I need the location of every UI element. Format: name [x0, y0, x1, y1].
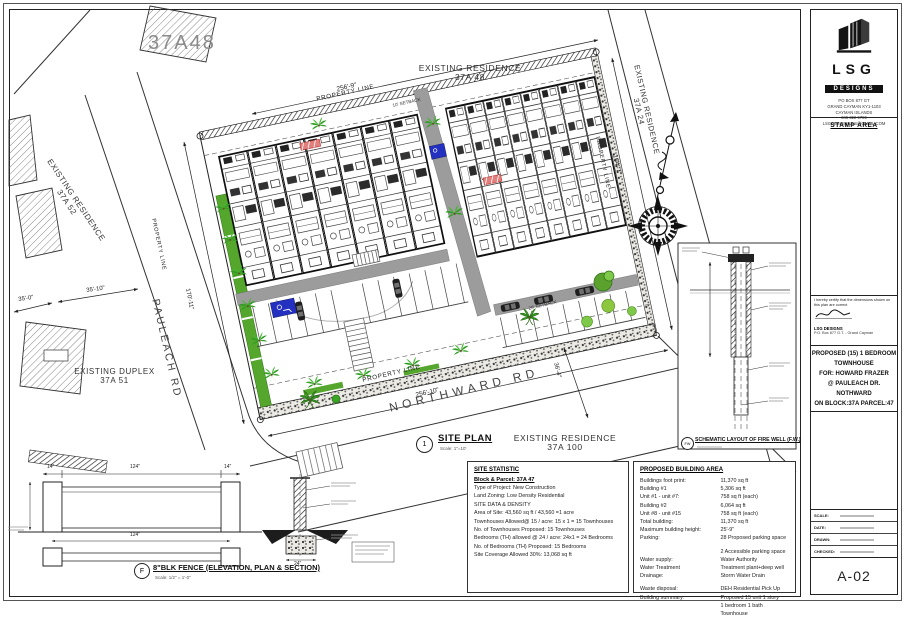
lsg-logo-icon [833, 14, 875, 56]
title-block-fields: SCALE: DATE: DRAWN: CHECKED: [811, 510, 897, 558]
site-statistic-line: Land Zoning: Low Density Residential [474, 492, 622, 500]
building-area-row: Building summary: Proposed 15 unit 1 sto… [640, 594, 789, 602]
project-title-line: FOR: HOWARD FRAZER [811, 369, 897, 379]
building-area-row: Drainage: Storm Water Drain [640, 572, 789, 580]
certification-section: I hereby certify that the dimensions sho… [811, 296, 897, 346]
sheet-number-section: A-02 [811, 558, 897, 594]
firm-logo-section: LSG DESIGNS PO BOX 877 GTGRAND CAYMAN KY… [811, 10, 897, 118]
fence-dim-post-left: 14" [47, 465, 54, 471]
drawing-sheet: 37A48 EXISTING RESIDENCE37A 48 EXISTING … [0, 0, 905, 604]
project-title-line: TOWNHOUSE [811, 359, 897, 369]
site-plan-callout-number: 1 [416, 436, 433, 453]
project-title-section: PROPOSED (15) 1 BEDROOMTOWNHOUSEFOR: HOW… [811, 346, 897, 412]
certification-address: P.O. Box 877 G.T. - Grand Cayman [814, 331, 894, 335]
site-statistic-subtitle: Block & Parcel: 37A 47 [474, 477, 622, 483]
site-statistic-line: No. of Bedrooms (TH) Proposed: 15 Bedroo… [474, 543, 622, 551]
site-statistic-line: Bedrooms (TH) allowed @ 24 / acre: 24x1 … [474, 534, 622, 542]
title-block-field-row: SCALE: [811, 510, 897, 522]
site-statistic-line: Area of Site: 43,560 sq ft / 43,560 =1 a… [474, 509, 622, 517]
fire-well-title: SCHEMATIC LAYOUT OF FIRE WELL (F.W.) [695, 438, 801, 444]
building-area-row: Maximum building height: 25'-9" [640, 526, 789, 534]
building-area-row: Waste disposal: DEH Residential Pick Up [640, 585, 789, 593]
field-value-bar [840, 527, 874, 529]
project-title-line: ON BLOCK:37A PARCEL:47 [811, 399, 897, 409]
fire-well-callout-tag: FW [681, 437, 694, 450]
fence-dim-post-right: 14" [224, 465, 231, 471]
firm-word: DESIGNS [825, 85, 882, 93]
site-plan-sheet: { "sheet": { "big_parcel_label": "37A48"… [0, 0, 905, 604]
fence-dim-footing: 24" [294, 562, 301, 568]
fence-scale: Scale: 1/2" = 1'-0" [155, 576, 191, 581]
sheet-number: A-02 [837, 568, 871, 584]
building-area-title: PROPOSED BUILDING AREA [640, 467, 789, 473]
firm-acronym: LSG [811, 61, 897, 77]
building-area-row: Total building: 11,370 sq ft [640, 518, 789, 526]
existing-buildings [9, 6, 216, 394]
parcel-number-label: 37A48 [148, 32, 216, 54]
building-area-row: Buildings foot print: 11,370 sq ft [640, 477, 789, 485]
fence-dim-span-plan: 124" [130, 533, 140, 539]
notes-section: 1. THE CONTRACTOR SHALL CHECK ALL DIMENS… [811, 412, 897, 510]
signature-icon [814, 308, 854, 320]
project-title-line: PROPOSED (15) 1 BEDROOM [811, 349, 897, 359]
building-area-row: Building #2 6,064 sq ft [640, 502, 789, 510]
site-statistic-line: No. of Townhouses Proposed: 15 Townhouse… [474, 526, 622, 534]
neighbor-label-37a48: EXISTING RESIDENCE37A 48 [395, 64, 545, 83]
building-area-table: PROPOSED BUILDING AREA Buildings foot pr… [633, 461, 796, 593]
field-value-bar [840, 539, 874, 541]
title-block: LSG DESIGNS PO BOX 877 GTGRAND CAYMAN KY… [810, 9, 898, 595]
site-plan-scale: Scale: 1"=10' [440, 447, 466, 452]
building-area-rows: Buildings foot print: 11,370 sq ft Build… [640, 477, 789, 618]
field-value-bar [840, 515, 874, 517]
neighbor-label-37a100: EXISTING RESIDENCE37A 100 [505, 434, 625, 453]
site-statistic-line: SITE DATA & DENSITY [474, 501, 622, 509]
site-statistic-line: Townhouses Allowed@ 15 / acre: 15 x 1 = … [474, 518, 622, 526]
building-area-row: Water Treatment Treatment plant+deep wel… [640, 564, 789, 572]
project-title-line: NOTHWARD [811, 389, 897, 399]
building-area-row: Parking: 28 Proposed parking space [640, 534, 789, 542]
stamp-area-label: STAMP AREA [811, 122, 897, 129]
site-statistic-table: SITE STATISTIC Block & Parcel: 37A 47 Ty… [467, 461, 629, 593]
title-block-field-row: DRAWN: [811, 534, 897, 546]
neighbor-label-37a51: EXISTING DUPLEX37A 51 [62, 368, 167, 386]
north-arrow-icon [655, 112, 679, 208]
building-area-row: Water supply: Water Authority [640, 556, 789, 564]
building-2 [446, 77, 626, 257]
site-statistic-lines: Type of Project: New ConstructionLand Zo… [474, 484, 622, 560]
accessible-parking-2 [429, 143, 446, 159]
fire-well-schematic [678, 243, 796, 449]
site-statistic-line: Site Coverage Allowed 30%: 13,068 sq ft [474, 551, 622, 559]
building-area-row: 1 bedroom 1 bath Townhouse [640, 602, 789, 618]
building-area-row: Unit #8 - unit #15 758 sq ft (each) [640, 510, 789, 518]
illegible-callout-text-fence [331, 483, 358, 538]
building-area-row: 2 Accessible parking space [640, 548, 789, 556]
field-value-bar [840, 551, 874, 553]
title-block-field-row: DATE: [811, 522, 897, 534]
fence-callout-tag: F [134, 563, 150, 579]
title-block-field-row: CHECKED: [811, 546, 897, 557]
site-statistic-title: SITE STATISTIC [474, 467, 622, 473]
building-area-row: Unit #1 - unit #7: 758 sq ft (each) [640, 493, 789, 501]
site-statistic-line: Type of Project: New Construction [474, 484, 622, 492]
stamp-area-section: STAMP AREA [811, 118, 897, 296]
site-plan-title: SITE PLAN [438, 434, 492, 444]
project-title-line: @ PAULEACH DR. [811, 379, 897, 389]
certification-statement: I hereby certify that the dimensions sho… [814, 298, 894, 307]
road-crosswalk [296, 443, 343, 478]
fence-dim-span: 124" [130, 465, 140, 471]
building-area-row: Building #1 5,306 sq ft [640, 485, 789, 493]
